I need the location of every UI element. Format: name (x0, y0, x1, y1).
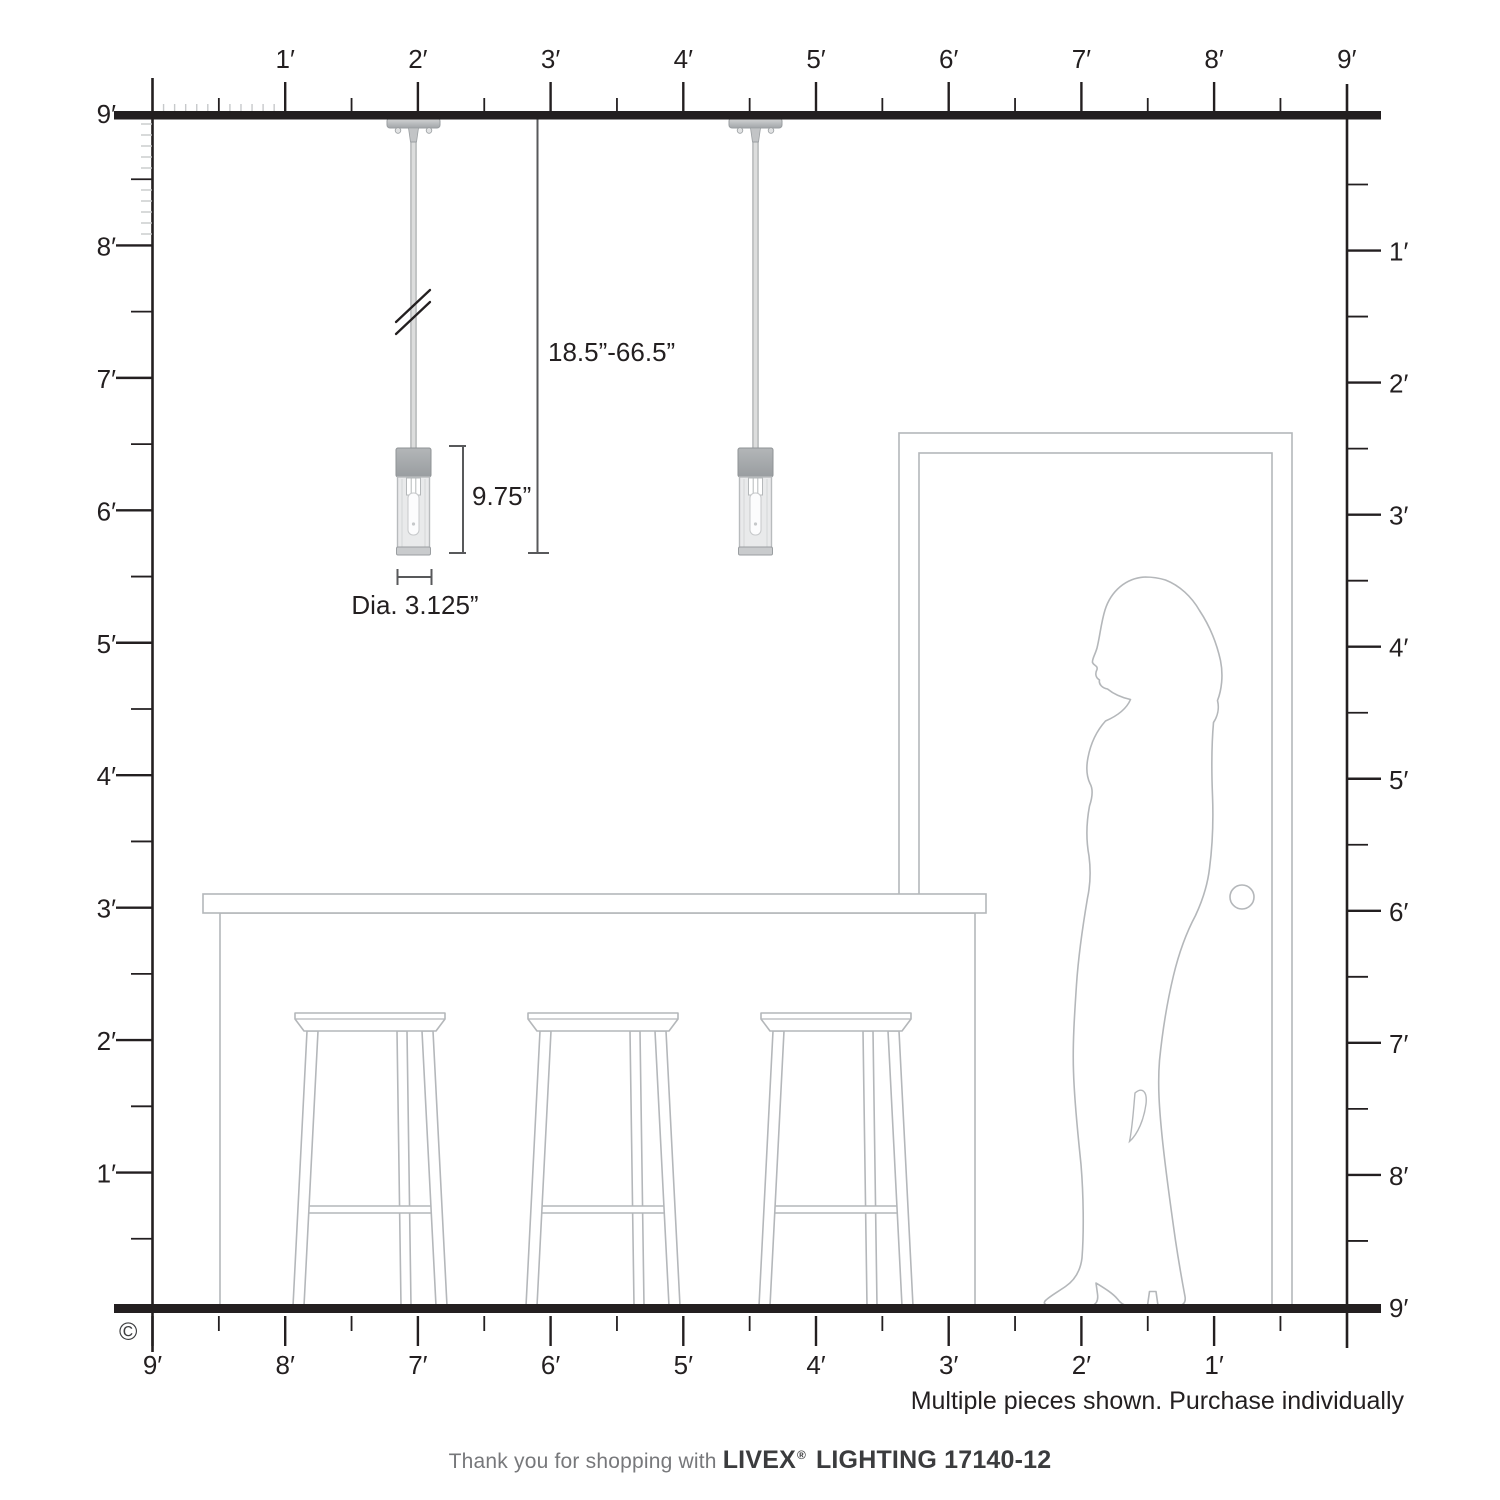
ruler-label: 1′ (97, 1159, 116, 1189)
ruler-label: 5′ (97, 629, 116, 659)
purchase-note: Multiple pieces shown. Purchase individu… (911, 1387, 1405, 1415)
ruler-label: 9′ (97, 99, 116, 129)
footer-product-number: LIGHTING 17140-12 (809, 1446, 1052, 1475)
scale-diagram-page: 18.5”-66.5” 9.75” Dia. 3.125” 1′2′3′4′5′… (0, 0, 1500, 1500)
dimension-fixture-height: 9.75” (449, 446, 531, 553)
ruler-label: 9′ (143, 1350, 162, 1380)
dimension-hang-range: 18.5”-66.5” (528, 116, 675, 553)
fixture-height-label: 9.75” (472, 481, 531, 511)
registered-trademark-icon: ® (797, 1448, 806, 1462)
ruler-label: 5′ (674, 1350, 693, 1380)
footer: Thank you for shopping with LIVEX® LIGHT… (0, 1446, 1500, 1475)
ruler-label: 2′ (97, 1026, 116, 1056)
floor-line (114, 1304, 1381, 1313)
ruler-label: 6′ (541, 1350, 560, 1380)
footer-brand: LIVEX (723, 1446, 796, 1475)
ruler-label: 4′ (97, 761, 116, 791)
ruler-label: 3′ (1389, 501, 1408, 531)
ruler-label: 7′ (1389, 1029, 1408, 1059)
ruler-label: 1′ (1389, 237, 1408, 267)
ruler-label: 7′ (408, 1350, 427, 1380)
pendant-light-1 (387, 118, 440, 555)
ruler-label: 2′ (1389, 369, 1408, 399)
ruler-label: 6′ (97, 496, 116, 526)
dimension-diameter: Dia. 3.125” (351, 569, 478, 620)
ruler-label: 9′ (1389, 1293, 1408, 1323)
ruler-label: 6′ (1389, 897, 1408, 927)
ruler-label: 9′ (1337, 44, 1356, 74)
ruler-label: 3′ (939, 1350, 958, 1380)
ruler-label: 6′ (939, 44, 958, 74)
footer-thanks-text: Thank you for shopping with (449, 1450, 723, 1474)
ruler-label: 8′ (1389, 1161, 1408, 1191)
ruler-label: 2′ (408, 44, 427, 74)
ruler-label: 4′ (806, 1350, 825, 1380)
ceiling-line (114, 111, 1381, 120)
pendant-light-2 (729, 118, 782, 555)
ruler-label: 8′ (1204, 44, 1223, 74)
scene: 18.5”-66.5” 9.75” Dia. 3.125” 1′2′3′4′5′… (0, 0, 1500, 1500)
ruler-label: 8′ (97, 231, 116, 261)
ruler-label: 7′ (97, 364, 116, 394)
ruler-label: 3′ (97, 894, 116, 924)
door-knob (1230, 885, 1254, 909)
diameter-label: Dia. 3.125” (351, 590, 478, 620)
copyright-symbol: © (119, 1318, 138, 1346)
ruler-label: 1′ (276, 44, 295, 74)
ruler-label: 2′ (1072, 1350, 1091, 1380)
ruler-label: 4′ (1389, 633, 1408, 663)
ruler-label: 8′ (276, 1350, 295, 1380)
ruler-label: 3′ (541, 44, 560, 74)
ruler-label: 5′ (806, 44, 825, 74)
ruler-label: 5′ (1389, 765, 1408, 795)
hang-range-label: 18.5”-66.5” (548, 337, 675, 367)
ruler-label: 7′ (1072, 44, 1091, 74)
ruler-label: 4′ (674, 44, 693, 74)
ruler-label: 1′ (1204, 1350, 1223, 1380)
